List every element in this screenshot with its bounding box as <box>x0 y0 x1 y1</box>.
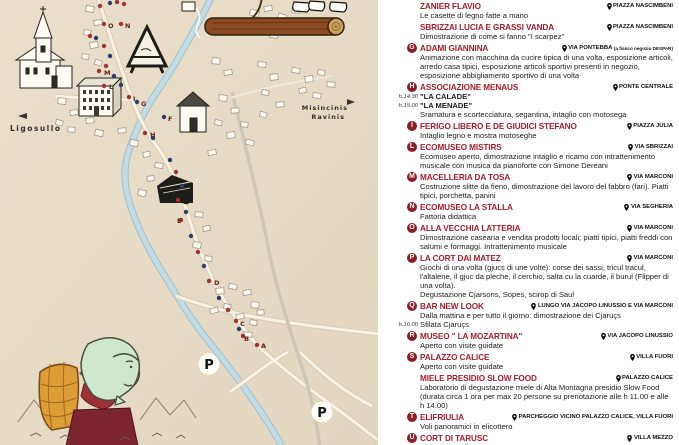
entry-location-text: VIA MARCONI <box>634 174 673 180</box>
program-entry: M MACELLERIA DA TOSA VIA MARCONI Costruz… <box>420 172 673 200</box>
entry-location-text: VIA JACOPO LINUSSIO <box>607 333 673 339</box>
village-map-drawing: ONMLIGHFEDCBA P P Ligosullo Misincinis R… <box>0 0 378 445</box>
map-dot-blue <box>180 184 184 188</box>
entry-location: PALAZZO CALICE <box>616 375 673 382</box>
entry-detail-line: Dalla mattina e per tutto il giorno: dim… <box>420 311 673 320</box>
entry-detail-line: Costruzione slitte da fieno, dimostrazio… <box>420 182 673 200</box>
map-dot-blue <box>108 54 112 58</box>
map-dot-blue <box>94 36 98 40</box>
entry-detail-line: Dimostrazione casearia e vendita prodott… <box>420 233 673 251</box>
entry-location-text: VIA SBRIZZAI <box>635 144 673 150</box>
entry-detail-line: Intaglio legno e mostra motoseghe <box>420 131 673 140</box>
map-dot-red <box>207 279 211 283</box>
entry-location: VILLA FUORI <box>630 354 673 361</box>
time-label: h.14.30 <box>399 93 418 102</box>
map-dot-red <box>104 64 108 68</box>
map-dot-red <box>97 69 101 73</box>
time-label: h.15.00 <box>399 102 418 111</box>
location-pin-icon <box>613 84 618 91</box>
location-pin-icon <box>630 354 635 361</box>
map-dot-blue <box>112 74 116 78</box>
map-dot-blue <box>202 264 206 268</box>
program-entry: S PALAZZO CALICE VILLA FUORI Aperto con … <box>420 352 673 371</box>
entry-letter-badge: M <box>407 172 417 182</box>
entry-letter-badge: U <box>407 433 417 443</box>
village-map: ONMLIGHFEDCBA P P Ligosullo Misincinis R… <box>0 0 378 445</box>
map-dot-red <box>174 170 178 174</box>
program-entry: L ECOMUSEO MISTIRS VIA SBRIZZAI Ecomuseo… <box>420 142 673 170</box>
entry-location: VIA SEGHERIA <box>624 204 673 211</box>
entry-detail-line: Sramatura e scortecciatura, segantina, i… <box>420 110 673 119</box>
entry-title: CORT DI TARUSC <box>420 434 488 443</box>
entry-title: ECOMUSEO MISTIRS <box>420 143 502 152</box>
location-pin-icon <box>607 24 612 31</box>
parking-marker-2: P <box>312 402 333 423</box>
entry-location-text: VILLA FUORI <box>636 354 673 360</box>
map-dot-red <box>176 198 180 202</box>
location-pin-icon <box>627 123 632 130</box>
palazzo-illustration <box>77 78 121 116</box>
location-pin-icon <box>512 414 517 421</box>
entry-details: Giochi di una volta (gjucs di une volte)… <box>420 263 673 299</box>
map-dot-red <box>122 2 126 6</box>
entry-letter-badge: G <box>407 43 417 53</box>
map-dot-red <box>119 22 123 26</box>
program-entry: SBRIZZAI LUCIA E GRASSI VANDA PIAZZA NAS… <box>420 22 673 41</box>
entry-title: BAR NEW LOOK <box>420 302 484 311</box>
map-letter-F: F <box>168 115 172 123</box>
entry-title: FERIGO LIBERO E DE GIUDICI STEFANO <box>420 122 577 131</box>
entry-title: MACELLERIA DA TOSA <box>420 173 510 182</box>
parking-marker-1: P <box>199 354 220 375</box>
entry-title: ASSOCIAZIONE MENAUS <box>420 83 518 92</box>
parking-icon: P <box>204 358 214 373</box>
map-dot-red <box>226 308 230 312</box>
entry-title: ADAMI GIANNINA <box>420 44 488 53</box>
map-dot-blue <box>162 115 166 119</box>
map-dot-red <box>234 319 238 323</box>
entry-location: PIAZZA NASCIMBENI <box>607 24 674 31</box>
entry-detail-line: h.15.00"LA MENADE" <box>420 101 673 110</box>
entry-location-text: VIA SEGHERIA <box>631 204 673 210</box>
woodcutter-feet <box>293 1 347 12</box>
entry-title: MUSEO " LA MOZARTINA" <box>420 332 522 341</box>
entry-letter-badge: N <box>407 202 417 212</box>
entry-detail-line: Giochi di una volta (gjucs di une volte)… <box>420 263 673 290</box>
entry-details: Fattoria didattica <box>420 212 673 221</box>
program-entry: Q BAR NEW LOOK LUNGO VIA JACOPO LINUSSIO… <box>420 301 673 329</box>
map-letter-D: D <box>214 279 220 287</box>
program-list: ZANIER FLAVIO PIAZZA NASCIMBENI Le caset… <box>378 0 679 445</box>
entry-detail-line: Ecomuseo aperto, dimostrazione intaglio … <box>420 152 673 170</box>
entry-detail-line: Aperto con visite guidate <box>420 362 673 371</box>
entry-title: LA CORT DAI MATEZ <box>420 254 501 263</box>
entry-title: ALLA VECCHIA LATTERIA <box>420 224 520 233</box>
entry-details: Costruzione slitte da fieno, dimostrazio… <box>420 182 673 200</box>
entry-detail-line: Le casette di legno fatte a mano <box>420 11 673 20</box>
entry-detail-line: Degustazione Cjarsons, Sopes, scirop di … <box>420 290 673 299</box>
location-pin-icon <box>531 303 536 310</box>
entry-letter-badge: T <box>407 412 417 422</box>
entry-detail-line: Aperto con visite guidate <box>420 341 673 350</box>
map-dot-red <box>127 95 131 99</box>
program-entry: R MUSEO " LA MOZARTINA" VIA JACOPO LINUS… <box>420 331 673 350</box>
map-dot-red <box>196 250 200 254</box>
program-entry: U CORT DI TARUSC VILLA MEZZO Visita del … <box>420 433 673 445</box>
entry-location-text: VIA PONTEBBA <box>568 45 612 51</box>
entry-location: PIAZZA JULIA <box>627 123 673 130</box>
entry-title: MIELE PRESIDIO SLOW FOOD <box>420 374 537 383</box>
entry-location: VILLA MEZZO <box>627 435 673 442</box>
entry-details: h.14.30"LA CALADE"h.15.00"LA MENADE"Sram… <box>420 92 673 119</box>
map-dot-red <box>102 22 106 26</box>
entry-location: LUNGO VIA JACOPO LINUSSIO E VIA MARCONI <box>531 303 673 310</box>
program-entry: G ADAMI GIANNINA VIA PONTEBBA (a fianco … <box>420 43 673 80</box>
entry-location: VIA JACOPO LINUSSIO <box>601 333 673 340</box>
brochure-page: ONMLIGHFEDCBA P P Ligosullo Misincinis R… <box>0 0 679 445</box>
entry-detail-line: Dimostrazione di come si fanno "I scarpe… <box>420 32 673 41</box>
map-dot-blue <box>189 234 193 238</box>
entry-letter-badge: I <box>407 121 417 131</box>
map-dot-blue <box>168 158 172 162</box>
program-entry: I FERIGO LIBERO E DE GIUDICI STEFANO PIA… <box>420 121 673 140</box>
entry-location: VIA SBRIZZAI <box>628 144 673 151</box>
entry-details: Voli panoramici in elicottero <box>420 422 673 431</box>
location-pin-icon <box>627 255 632 262</box>
entry-location: PARCHEGGIO VICINO PALAZZO CALICE, VILLA … <box>512 414 673 421</box>
entry-location-text: VIA MARCONI <box>634 255 673 261</box>
map-letter-G: G <box>141 100 146 108</box>
entry-details: Ecomuseo aperto, dimostrazione intaglio … <box>420 152 673 170</box>
entry-details: Animazione con macchina da cucire tipica… <box>420 53 673 80</box>
entry-details: Aperto con visite guidate <box>420 362 673 371</box>
entry-location-text: LUNGO VIA JACOPO LINUSSIO E VIA MARCONI <box>538 303 673 309</box>
map-dot-red <box>255 343 259 347</box>
entry-letter-badge: H <box>407 82 417 92</box>
program-entry: MIELE PRESIDIO SLOW FOOD PALAZZO CALICE … <box>420 373 673 410</box>
map-dot-blue <box>217 296 221 300</box>
location-pin-icon <box>627 225 632 232</box>
entry-location-text: PIAZZA NASCIMBENI <box>613 24 673 30</box>
entry-location: PONTE CENTRALE <box>613 84 674 91</box>
map-letter-N: N <box>125 22 130 30</box>
program-entry: O ALLA VECCHIA LATTERIA VIA MARCONI Dimo… <box>420 223 673 251</box>
map-dot-red <box>98 4 102 8</box>
entry-location: VIA MARCONI <box>627 225 673 232</box>
entry-location-text: PARCHEGGIO VICINO PALAZZO CALICE, VILLA … <box>519 414 673 420</box>
entry-detail-line: Laboratorio di degustazione miele di Alt… <box>420 383 673 410</box>
map-letter-B: B <box>244 335 249 343</box>
program-entry: ZANIER FLAVIO PIAZZA NASCIMBENI Le caset… <box>420 1 673 20</box>
program-entry: H ASSOCIAZIONE MENAUS PONTE CENTRALE h.1… <box>420 82 673 119</box>
entry-detail-line: h.16.00Sfilata Cjaruçs <box>420 320 673 329</box>
parking-icon: P <box>317 406 327 421</box>
program-entry: T ELIFRIULIA PARCHEGGIO VICINO PALAZZO C… <box>420 412 673 431</box>
program-panel: ZANIER FLAVIO PIAZZA NASCIMBENI Le caset… <box>378 0 679 445</box>
map-dot-red <box>102 44 106 48</box>
entry-title: PALAZZO CALICE <box>420 353 489 362</box>
map-dot-red <box>88 34 92 38</box>
entry-letter-badge: R <box>407 331 417 341</box>
map-letter-I: I <box>133 95 135 103</box>
entry-detail-line: h.14.30"LA CALADE" <box>420 92 673 101</box>
entry-letter-badge: P <box>407 253 417 263</box>
time-label: h.16.00 <box>399 321 418 330</box>
entry-title: SBRIZZAI LUCIA E GRASSI VANDA <box>420 23 554 32</box>
entry-location-text: PIAZZA JULIA <box>633 123 673 129</box>
entry-letter-badge: L <box>407 142 417 152</box>
entry-detail-line: Fattoria didattica <box>420 212 673 221</box>
entry-detail-line: Voli panoramici in elicottero <box>420 422 673 431</box>
label-ligosullo: Ligosullo <box>10 124 61 133</box>
entry-location-text: VIA MARCONI <box>634 225 673 231</box>
entry-location: PIAZZA NASCIMBENI <box>607 3 674 10</box>
entry-location: VIA MARCONI <box>627 255 673 262</box>
entry-location-text: VILLA MEZZO <box>634 435 673 441</box>
entry-details: Intaglio legno e mostra motoseghe <box>420 131 673 140</box>
label-ravinis: Ravinis <box>311 113 345 121</box>
entry-details: Laboratorio di degustazione miele di Alt… <box>420 383 673 410</box>
entry-location: VIA MARCONI <box>627 174 673 181</box>
map-dot-red <box>143 131 147 135</box>
entry-details: Dimostrazione casearia e vendita prodott… <box>420 233 673 251</box>
program-entry: N ECOMUSEO LA STALLA VIA SEGHERIA Fattor… <box>420 202 673 221</box>
location-pin-icon <box>562 45 567 52</box>
entry-title: ELIFRIULIA <box>420 413 464 422</box>
location-pin-icon <box>601 333 606 340</box>
program-entry: P LA CORT DAI MATEZ VIA MARCONI Giochi d… <box>420 253 673 299</box>
map-letter-E: E <box>177 217 181 225</box>
entry-title: ZANIER FLAVIO <box>420 2 481 11</box>
map-letter-A: A <box>261 342 266 350</box>
entry-details: Aperto con visite guidate <box>420 341 673 350</box>
entry-letter-badge: O <box>407 223 417 233</box>
map-letter-L: L <box>109 83 113 91</box>
entry-details: Dimostrazione di come si fanno "I scarpe… <box>420 32 673 41</box>
entry-letter-badge: Q <box>407 301 417 311</box>
map-letter-H: H <box>150 131 155 139</box>
map-dot-blue <box>108 1 112 5</box>
location-pin-icon <box>627 435 632 442</box>
entry-detail-line: Animazione con macchina da cucire tipica… <box>420 53 673 80</box>
location-pin-icon <box>607 3 612 10</box>
entry-location-text: PIAZZA NASCIMBENI <box>613 3 673 9</box>
map-dot-blue <box>119 83 123 87</box>
location-pin-icon <box>627 174 632 181</box>
small-house-illustration <box>182 2 195 11</box>
map-dot-red <box>102 84 106 88</box>
label-misincinis: Misincinis <box>302 104 348 112</box>
map-dot-blue <box>184 210 188 214</box>
entry-details: Le casette di legno fatte a mano <box>420 11 673 20</box>
location-pin-icon <box>624 204 629 211</box>
map-letter-C: C <box>240 320 245 328</box>
entry-location-text: PONTE CENTRALE <box>619 84 673 90</box>
entry-location: VIA PONTEBBA (a fianco negozio DESPAR) <box>562 45 673 52</box>
location-pin-icon <box>616 375 621 382</box>
map-letter-M: M <box>104 69 110 77</box>
map-dot-red <box>115 0 119 4</box>
entry-location-note: (a fianco negozio DESPAR) <box>614 46 673 51</box>
entry-title: ECOMUSEO LA STALLA <box>420 203 513 212</box>
location-pin-icon <box>628 144 633 151</box>
map-dot-blue <box>135 100 139 104</box>
map-letter-O: O <box>108 22 114 30</box>
entry-location-text: PALAZZO CALICE <box>622 375 673 381</box>
entry-letter-badge: S <box>407 352 417 362</box>
entry-details: Dalla mattina e per tutto il giorno: dim… <box>420 311 673 329</box>
